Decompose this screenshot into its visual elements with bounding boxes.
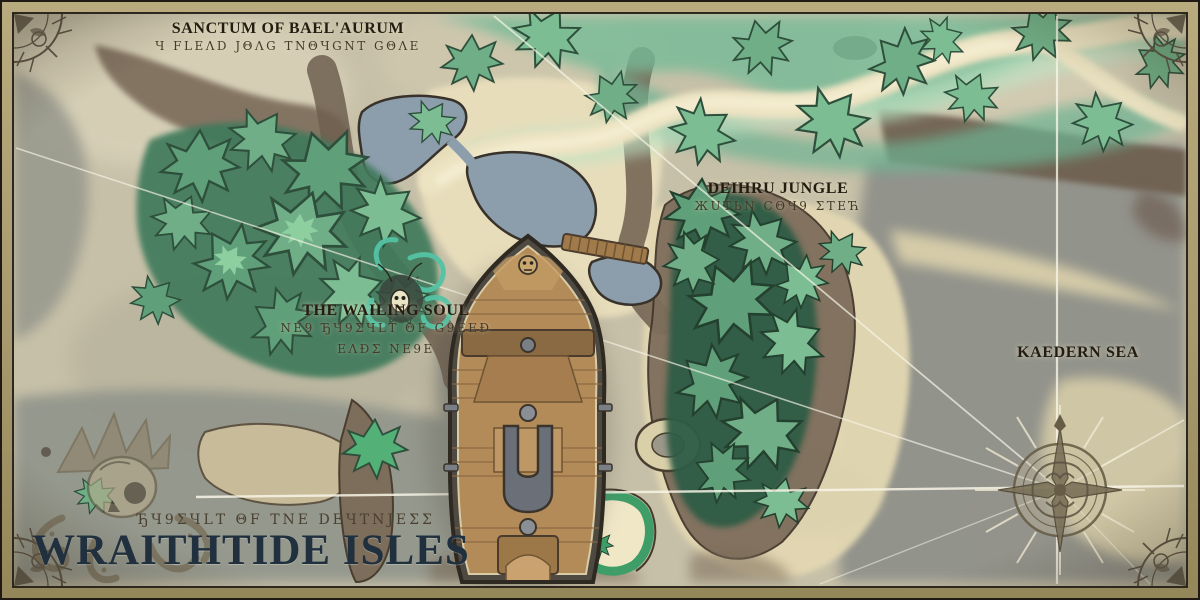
map-title-runes: ЂЧ9ΣЧLТ ΘF ТΝΕ DΕЧТΝЈΕΣΣ: [102, 512, 470, 528]
wailing-runes-2: ΕΛÐΣ ΝΕ9Ε: [280, 342, 491, 356]
jungle-title: DEIHRU JUNGLE: [695, 180, 862, 198]
map-title: WRAITHTIDE ISLES: [32, 528, 470, 574]
map-canvas-area: SANCTUM OF BAEL'AURUM Ч FLΕΛD JΘΛG ТΝΘЧG…: [12, 12, 1188, 588]
map-artwork: [14, 14, 1186, 586]
kaedern-title: KAEDERN SEA: [1017, 344, 1139, 362]
label-kaedern-sea: KAEDERN SEA: [1017, 344, 1139, 362]
map-title-block: ЂЧ9ΣЧLТ ΘF ТΝΕ DΕЧТΝЈΕΣΣ WRAITHTIDE ISLE…: [32, 512, 470, 574]
sanctum-title: SANCTUM OF BAEL'AURUM: [155, 20, 421, 38]
vignette: [14, 14, 1186, 586]
label-sanctum: SANCTUM OF BAEL'AURUM Ч FLΕΛD JΘΛG ТΝΘЧG…: [155, 20, 421, 53]
label-wailing-soul: THE WAILING SOUL ΝΕ9 ЂЧ9ΣЧLТ ΘF G9ΕΕÐ ΕΛ…: [280, 302, 491, 356]
sanctum-runes: Ч FLΕΛD JΘΛG ТΝΘЧGΝТ GΘΛΕ: [155, 39, 421, 53]
wailing-title: THE WAILING SOUL: [280, 302, 491, 320]
label-jungle: DEIHRU JUNGLE ЖUТЬΝ СΘЧ9 ΣТΕЋ: [695, 180, 862, 213]
map-window: SANCTUM OF BAEL'AURUM Ч FLΕΛD JΘΛG ТΝΘЧG…: [0, 0, 1200, 600]
wailing-runes-1: ΝΕ9 ЂЧ9ΣЧLТ ΘF G9ΕΕÐ: [280, 321, 491, 335]
jungle-runes: ЖUТЬΝ СΘЧ9 ΣТΕЋ: [695, 199, 862, 213]
